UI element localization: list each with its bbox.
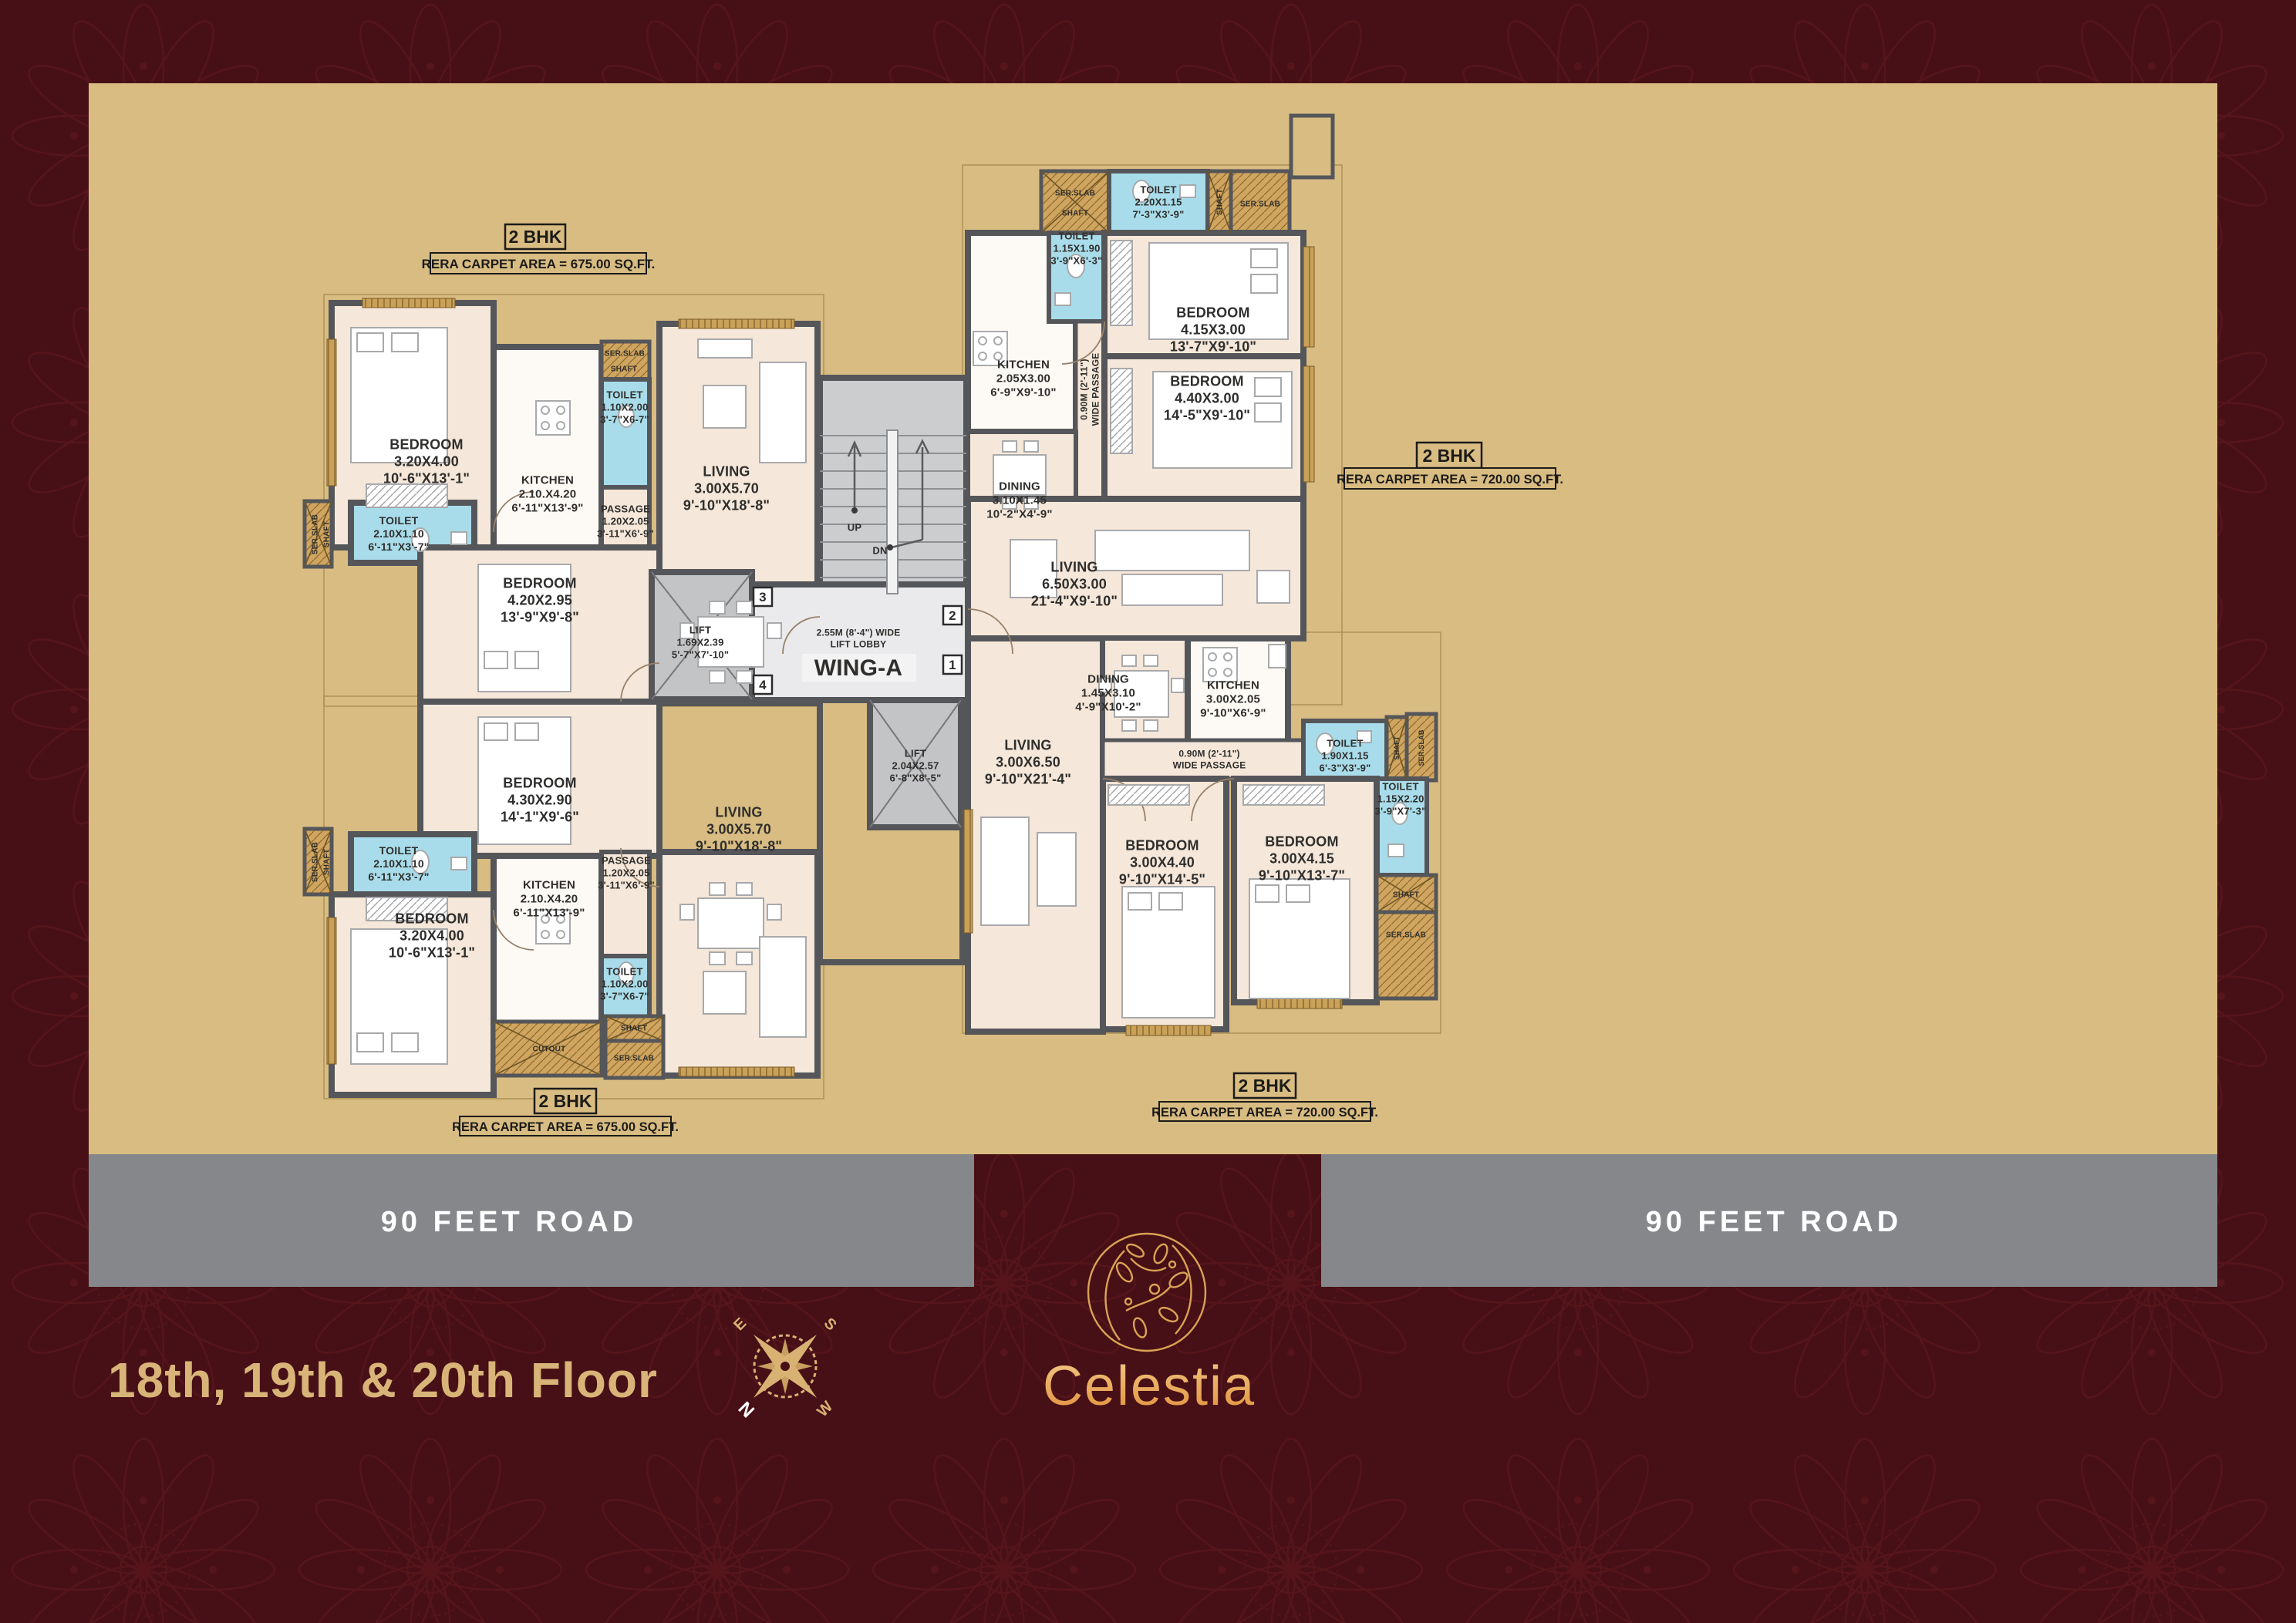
flat-number-1: 1	[949, 658, 956, 672]
flat-number-3: 3	[759, 590, 767, 604]
label-serslab-tl-left: SER.SLAB	[312, 514, 320, 554]
label-shaft-br: SHAFT	[1393, 891, 1419, 900]
label-serslab-tr-right: SER.SLAB	[1240, 200, 1280, 209]
room-label-bedroom-tl: BEDROOM3.20X4.0010'-6"X13'-1"	[383, 436, 470, 486]
room-label-kitchen-bl: KITCHEN2.10.X4.206'-11"X13'-9"	[513, 878, 585, 919]
unit-type: 2 BHK	[1238, 1076, 1291, 1096]
unit-area: RERA CARPET AREA = 720.00 SQ.FT.	[1337, 473, 1563, 487]
label-shaft-br-v: SHAFT	[1393, 736, 1401, 759]
label-serslab-br-v: SER.SLAB	[1418, 729, 1425, 766]
room-label-passage-bl: PASSAGE1.20X2.053'-11"X6'-9"	[598, 855, 655, 891]
label-passage-tr: 0.90M (2'-11")WIDE PASSAGE	[1079, 353, 1101, 426]
flat-number-2: 2	[949, 608, 956, 623]
room-label-bedroom-tr-2: BEDROOM4.40X3.0014'-5"X9'-10"	[1164, 373, 1250, 423]
label-serslab-tl-right: SER.SLAB	[605, 350, 645, 359]
room-label-toilet-tr-1: TOILET1.15X1.903'-9"X6'-3"	[1051, 231, 1103, 267]
label-serslab-tr-left: SER.SLAB	[1055, 190, 1095, 198]
room-label-toilet-tr-2: TOILET2.20X1.157'-3"X3'-9"	[1133, 184, 1185, 221]
label-up: UP	[848, 522, 862, 534]
road-label-left: 90 FEET ROAD	[381, 1206, 637, 1238]
flat-number-4: 4	[759, 678, 767, 692]
box-serslab-br	[1377, 912, 1436, 998]
unit-type: 2 BHK	[538, 1091, 592, 1111]
unit-area: RERA CARPET AREA = 675.00 SQ.FT.	[452, 1120, 679, 1134]
room-label-kitchen-tr: KITCHEN2.05X3.006'-9"X9'-10"	[990, 358, 1056, 399]
floor-title: 18th, 19th & 20th Floor	[108, 1352, 658, 1408]
wing-name-block: WING-A	[802, 654, 916, 682]
room-label-bedroom-bl: BEDROOM3.20X4.0010'-6"X13'-1"	[389, 911, 475, 960]
balcony-tr-corner	[1291, 116, 1333, 177]
unit-type: 2 BHK	[508, 227, 561, 247]
room-kitchen-tl	[494, 347, 602, 547]
label-shaft-tl-right: SHAFT	[611, 365, 637, 374]
floor-plan-page: 3 4 2 1 WING-A BEDROOM3.20X4.0010'-6"X13…	[0, 0, 2296, 1623]
room-label-bedroom-ml-top: BEDROOM4.20X2.9513'-9"X9'-8"	[501, 575, 579, 625]
room-label-toilet-tl-2: TOILET1.10X2.003'-7"X6-7"	[600, 389, 649, 426]
label-serslab-bl: SER.SLAB	[614, 1055, 654, 1063]
room-label-toilet-bl-2: TOILET1.10X2.003'-7"X6-7"	[600, 966, 649, 1002]
label-shaft-bl: SHAFT	[621, 1025, 647, 1033]
label-serslab-bl-left: SER.SLAB	[312, 842, 320, 882]
label-shaft-bl-left: SHAFT	[323, 849, 332, 875]
room-label-kitchen-tl: KITCHEN2.10.X4.206'-11"X13'-9"	[511, 473, 583, 514]
room-label-bedroom-br-1: BEDROOM3.00X4.409'-10"X14'-5"	[1119, 837, 1205, 887]
room-label-bedroom-tr-1: BEDROOM4.15X3.0013'-7"X9'-10"	[1170, 305, 1256, 354]
label-shaft-tr-left: SHAFT	[1062, 210, 1088, 218]
label-cutout-bl: CUTOUT	[533, 1046, 566, 1054]
room-label-bedroom-br-2: BEDROOM3.00X4.159'-10"X13'-7"	[1259, 833, 1345, 883]
room-label-kitchen-br: KITCHEN3.00X2.059'-10"X6'-9"	[1200, 678, 1266, 719]
label-shaft-tr: SHAFT	[1216, 189, 1225, 215]
room-label-toilet-br-2: TOILET1.15X2.203'-9"X7'-3"	[1375, 781, 1427, 817]
label-serslab-br: SER.SLAB	[1386, 931, 1426, 940]
road-label-right: 90 FEET ROAD	[1646, 1206, 1902, 1238]
unit-area: RERA CARPET AREA = 675.00 SQ.FT.	[422, 257, 656, 271]
label-dn: DN	[872, 545, 887, 557]
box-serslab-tl-right	[602, 342, 649, 379]
label-shaft-tl-left: SHAFT	[323, 521, 332, 547]
room-label-passage-tl: PASSAGE1.20X2.053'-11"X6'-9"	[597, 503, 654, 540]
unit-area: RERA CARPET AREA = 720.00 SQ.FT.	[1151, 1106, 1378, 1120]
unit-type: 2 BHK	[1422, 446, 1475, 466]
wing-name: WING-A	[814, 655, 903, 681]
label-passage-br: 0.90M (2'-11")WIDE PASSAGE	[1173, 749, 1246, 771]
room-label-toilet-br-1: TOILET1.90X1.156'-3"X3'-9"	[1320, 738, 1371, 774]
brand-name: Celestia	[1043, 1355, 1256, 1417]
room-label-bedroom-ml-bot: BEDROOM4.30X2.9014'-1"X9'-6"	[501, 775, 579, 824]
